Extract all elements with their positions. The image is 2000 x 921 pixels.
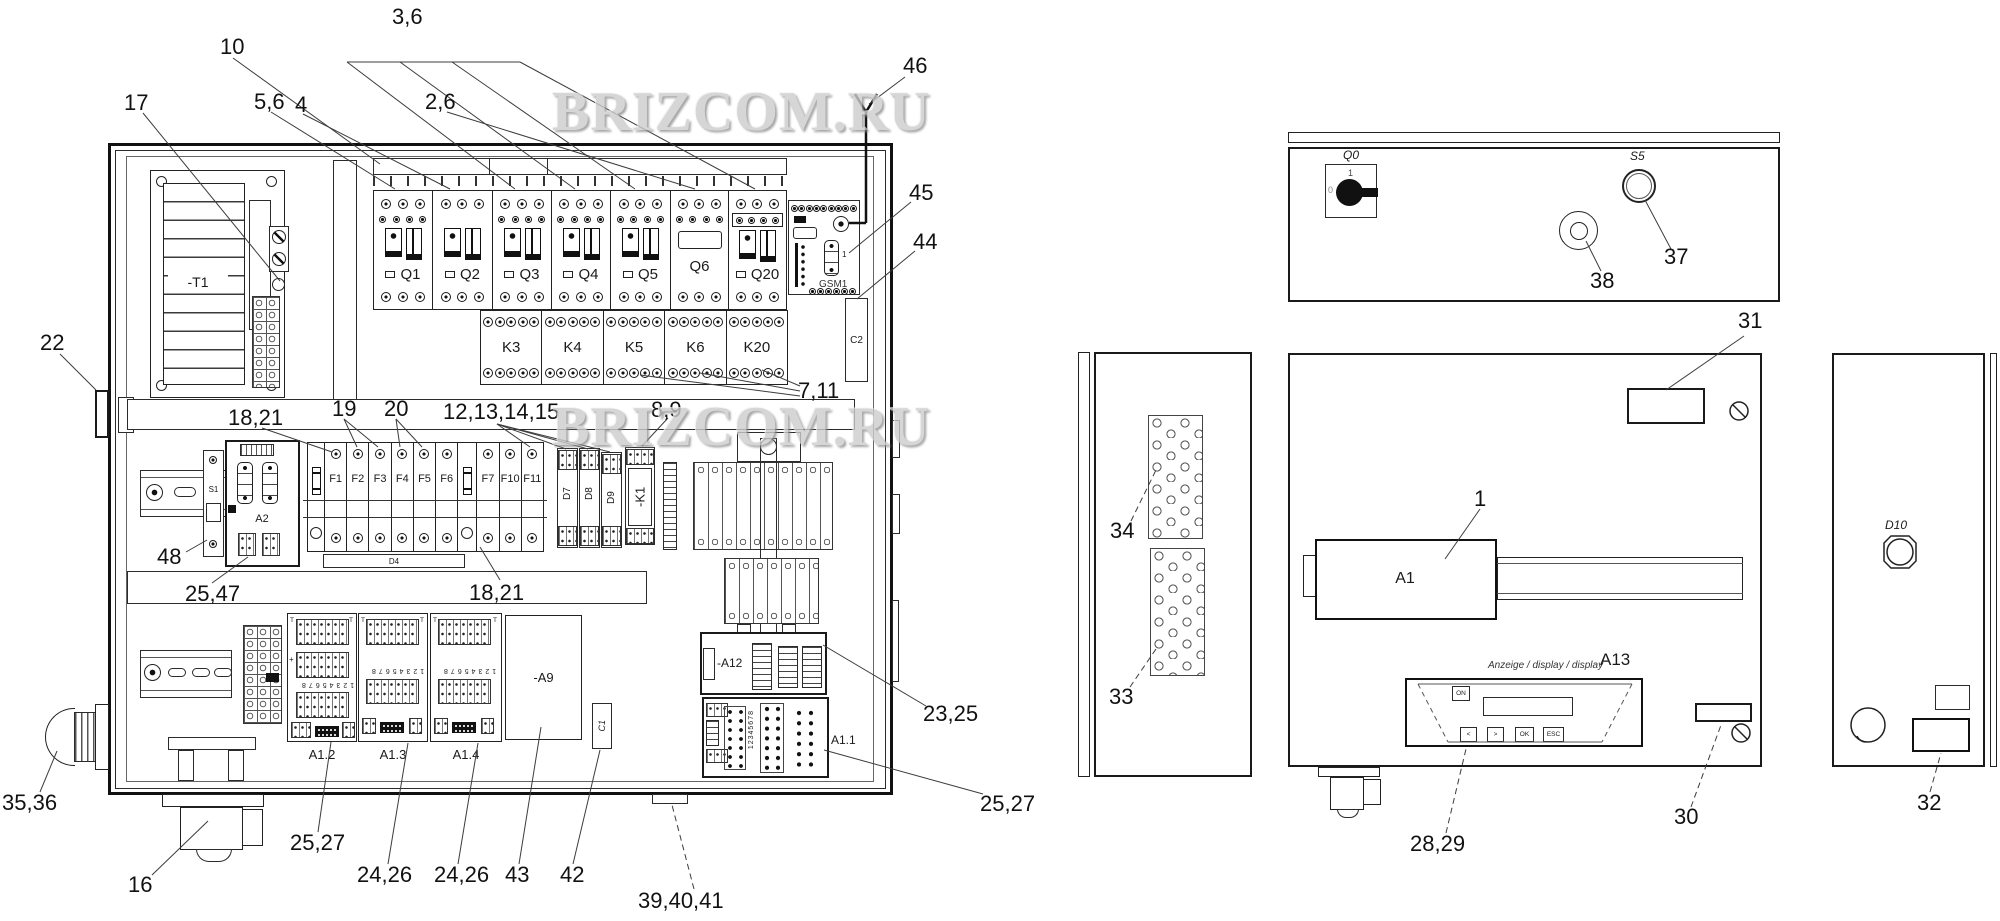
gsm-dsub-connector (824, 240, 839, 276)
d7-label: D7 (560, 474, 575, 514)
callout-32: 32 (1917, 790, 1941, 816)
io-terminal-strip (366, 619, 419, 645)
terminal-screws (437, 288, 488, 306)
a2-jumper (228, 505, 236, 513)
rail-screw (146, 484, 163, 501)
breaker-row: Q1 Q2 Q3 Q4 Q5 (373, 190, 787, 310)
bracket-bar (168, 737, 256, 750)
a13-esc-button: ESC (1543, 727, 1564, 742)
relay-label: K6 (686, 339, 704, 356)
fuse-label-wrap: F11 (523, 459, 541, 499)
terminal-screws (378, 195, 428, 213)
a11-label: A1.1 (831, 733, 856, 747)
io-bottom-block (481, 718, 494, 734)
a2-dsub-1 (237, 462, 253, 504)
callout-24-26-a: 24,26 (357, 862, 412, 888)
terminal-screws (667, 365, 724, 381)
breaker-label-wrap: Q5 (623, 266, 658, 283)
terminal-screws (483, 365, 540, 381)
indicator-38-inner (1570, 222, 1588, 240)
breaker-switch-icon (504, 228, 541, 260)
callout-23-25: 23,25 (923, 701, 978, 727)
callout-38: 38 (1590, 268, 1614, 294)
d9-bottom-terminals (602, 526, 621, 546)
marker-icon (445, 271, 455, 278)
io-terminal-strip (296, 692, 349, 718)
a13-caption: Anzeige / display / display (1488, 660, 1603, 671)
a1-rail-line (1497, 563, 1743, 564)
callout-37: 37 (1664, 244, 1688, 270)
marker-icon (623, 271, 633, 278)
relay-label-wrap: K6 (686, 330, 704, 365)
a2-label: A2 (248, 512, 276, 526)
callout-2-6: 2,6 (425, 89, 456, 115)
screw-icon (272, 252, 286, 266)
a11-strip (706, 720, 719, 746)
terminal-screws (556, 288, 606, 306)
marker-icon (385, 271, 395, 278)
fuse-label-wrap: F10 (501, 459, 520, 499)
breaker-label: Q3 (519, 266, 539, 283)
terminal-screws (606, 365, 663, 381)
hole-icon (272, 278, 285, 291)
relay-k4: K4 (542, 311, 603, 384)
label-window-31 (1627, 388, 1705, 424)
terminal-screws (497, 288, 547, 306)
fuse-label-wrap: F4 (396, 459, 409, 499)
callout-25-27-b: 25,27 (980, 791, 1035, 817)
terminal-screws (497, 195, 547, 213)
relay-label: K4 (563, 339, 581, 356)
callout-1: 1 (1474, 486, 1486, 512)
d7-bottom-terminals (558, 526, 577, 546)
c1-capacitor: C1 (592, 703, 612, 749)
left-hinge-tab (95, 390, 109, 438)
fuse-f5: F5 (414, 443, 436, 551)
terminal-screws (376, 213, 429, 225)
fuse-disconnect (458, 443, 477, 551)
relay-k6: K6 (665, 311, 726, 384)
rail-slot (192, 668, 210, 677)
rail-screw (144, 664, 161, 681)
relay-label: K3 (502, 339, 520, 356)
marker-icon (736, 271, 746, 278)
callout-48: 48 (157, 544, 181, 570)
terminal-screws (732, 213, 783, 227)
a13-designator: A13 (1600, 650, 1630, 670)
terminal-screws (615, 288, 666, 306)
io-terminal-strip (296, 652, 349, 678)
fuse-f6: F6 (436, 443, 458, 551)
d7-top-terminals (558, 450, 577, 470)
fuse-label: F11 (523, 473, 541, 485)
bottom-gland-tip (196, 849, 232, 862)
marker-icon (504, 271, 514, 278)
t-mark: T (493, 617, 497, 624)
fuse-label: F7 (482, 473, 495, 485)
terminal-screws (733, 288, 782, 306)
spacer (435, 213, 489, 225)
busbar-joint (547, 159, 551, 174)
s5-button (1622, 169, 1656, 203)
io-module-label: A1.3 (371, 747, 415, 762)
callout-43: 43 (505, 862, 529, 888)
fuse-row: F1 F2 F3 F4 F5 F6 F7 F10 F11 (307, 442, 544, 552)
terminal-screw (209, 540, 217, 548)
io-digits: 12345678 (441, 667, 491, 676)
fuse-f2: F2 (347, 443, 369, 551)
door-gland-flange (1318, 767, 1380, 777)
terminal-screws (495, 213, 548, 225)
fuse-glyph (463, 467, 472, 495)
terminal-screws (675, 195, 724, 213)
a11-digits: 12345678 (748, 710, 758, 766)
relay-label-wrap: K20 (743, 330, 770, 365)
relay-label-wrap: K3 (502, 330, 520, 365)
plus-mark: + (289, 655, 294, 664)
d8-label: D8 (582, 474, 597, 514)
q0-pos-off: 0 (1328, 185, 1333, 195)
relay-k20: K20 (727, 311, 787, 384)
fuse-label-wrap: F6 (440, 459, 453, 499)
fuse-label: F4 (396, 473, 409, 485)
breaker-q2: Q2 (433, 191, 493, 309)
t-mark: T (361, 617, 365, 624)
breaker-q6: Q6 (671, 191, 729, 309)
a1-rail-line (1497, 593, 1743, 594)
gsm-bottom-pins (808, 287, 856, 296)
a12-ladder (778, 646, 798, 688)
d10-label: D10 (1885, 518, 1907, 532)
bottom-gland-flange (162, 794, 264, 807)
a9-module: -A9 (505, 615, 582, 740)
s5-button-inner (1626, 173, 1652, 199)
breaker-switch-icon (563, 228, 600, 260)
a13-next-button: > (1487, 727, 1504, 742)
bracket-prong (228, 750, 244, 781)
a13-prev-button: < (1460, 727, 1477, 742)
right-tab-1 (892, 420, 900, 458)
fuse-din-rail (303, 500, 547, 518)
top-panel-strip (1288, 132, 1780, 143)
callout-25-27-a: 25,27 (290, 830, 345, 856)
terminal-screws (437, 195, 488, 213)
terminal-screws (544, 314, 601, 330)
fuse-label: F2 (351, 473, 364, 485)
gsm-pin-column (795, 243, 805, 287)
relay-label-wrap: K5 (625, 330, 643, 365)
right-tab-3 (892, 600, 899, 682)
callout-10: 10 (220, 34, 244, 60)
breaker-label-wrap: Q20 (736, 266, 779, 283)
gsm-connector (793, 227, 817, 239)
callout-45: 45 (909, 180, 933, 206)
bracket-prong (178, 750, 194, 781)
io-module-label: A1.4 (444, 747, 488, 762)
relay-row: K3 K4 K5 K6 K20 (480, 310, 788, 385)
marker-icon (563, 271, 573, 278)
breaker-q3: Q3 (493, 191, 552, 309)
small-window (1935, 685, 1970, 710)
fuse-glyph (312, 467, 321, 495)
breaker-q5: Q5 (611, 191, 671, 309)
k1-bottom-terminals (626, 528, 654, 544)
bottom-gland-body (180, 807, 243, 850)
fuse-label-wrap: F1 (329, 459, 342, 499)
fuse-f7: F7 (477, 443, 499, 551)
breaker-switch-icon (739, 230, 776, 262)
terminal-screw (209, 456, 217, 464)
io-digits: 12345678 (299, 681, 349, 690)
rail-slot (214, 668, 232, 677)
a11-terminal-col (724, 706, 746, 770)
fuse-f1: F1 (325, 443, 347, 551)
breaker-label-wrap: Q1 (385, 266, 420, 283)
callout-8-9: 8,9 (651, 397, 682, 423)
fuse-f11: F11 (522, 443, 543, 551)
fuse-label: F10 (501, 473, 520, 485)
io-terminal-strip (296, 619, 349, 645)
k1-label: -K1 (628, 468, 652, 526)
io-digits: 12345678 (369, 667, 419, 676)
breaker-label: Q20 (751, 266, 779, 283)
watermark-top: BRIZCOM.RU (552, 80, 931, 144)
terminal-screws (733, 195, 782, 213)
label-window-30 (1695, 703, 1752, 722)
breaker-label: Q2 (460, 266, 480, 283)
terminal-screws (378, 288, 428, 306)
io-terminal-strip (438, 619, 491, 645)
io-bottom-block (434, 718, 448, 734)
terminal-screws (613, 213, 667, 225)
gsm-port-label: 1 (842, 250, 846, 259)
callout-17: 17 (124, 90, 148, 116)
t-mark: T (433, 617, 437, 624)
vent-upper (1148, 415, 1203, 539)
callout-16: 16 (128, 872, 152, 898)
label-window-32 (1912, 718, 1970, 752)
right-tab-2 (892, 494, 900, 534)
relay-label-wrap: K4 (563, 330, 581, 365)
fuse-f4: F4 (392, 443, 414, 551)
breaker-label: Q4 (578, 266, 598, 283)
callout-18-21-b: 18,21 (469, 580, 524, 606)
relay-k5: K5 (604, 311, 665, 384)
screw-icon (272, 230, 286, 244)
callout-39-40-41: 39,40,41 (638, 888, 724, 914)
a2-terminal-1 (238, 533, 256, 556)
door-gland-tip (1337, 809, 1359, 818)
terminal-screws (615, 195, 666, 213)
door-gland-body (1330, 777, 1364, 810)
terminal-screws (728, 365, 785, 381)
t-mark: T (349, 617, 353, 624)
q0-pos-on: 1 (1348, 168, 1353, 178)
gsm-chip (794, 216, 806, 223)
q0-label: Q0 (1343, 148, 1359, 162)
terminal-strip-small (663, 462, 677, 550)
breaker-q1: Q1 (374, 191, 433, 309)
io-connector (380, 722, 404, 733)
breaker-q20: Q20 (729, 191, 786, 309)
a2-terminal-2 (262, 533, 280, 556)
breaker-label-wrap: Q6 (689, 258, 709, 275)
callout-34: 34 (1110, 518, 1134, 544)
callout-46: 46 (903, 53, 927, 79)
io-module-label: A1.2 (300, 747, 344, 762)
fuse-label-wrap: F5 (418, 459, 431, 499)
k1-top-terminals (626, 449, 654, 465)
terminal-screws (483, 314, 540, 330)
io-terminal-strip (366, 679, 419, 704)
door-gland-side (1363, 779, 1381, 805)
callout-24-26-b: 24,26 (434, 862, 489, 888)
io-bottom-block (409, 718, 422, 734)
fuse-holder-icon (678, 231, 722, 249)
terminal-screws (544, 365, 601, 381)
cable-gland-dome (45, 708, 75, 766)
terminal-screws (673, 213, 725, 225)
io-connector (452, 722, 476, 733)
s5-label: S5 (1630, 149, 1645, 163)
callout-3-6: 3,6 (392, 4, 423, 30)
terminal-block-lower (724, 558, 819, 624)
callout-30: 30 (1674, 804, 1698, 830)
busbar-joint (489, 159, 493, 174)
breaker-label-wrap: Q2 (445, 266, 480, 283)
a13-display-window (1483, 697, 1573, 716)
callout-31: 31 (1738, 308, 1762, 334)
assembly-diagram: -T1 Q1 Q2 Q3 (0, 0, 2000, 921)
relay-label: K20 (743, 339, 770, 356)
breaker-q4: Q4 (552, 191, 611, 309)
s1-label: S1 (204, 482, 223, 496)
io-terminal-strip (438, 679, 491, 704)
d8-top-terminals (580, 450, 599, 470)
breaker-label: Q5 (638, 266, 658, 283)
io-bottom-block (291, 722, 311, 738)
callout-42: 42 (560, 862, 584, 888)
callout-44: 44 (913, 229, 937, 255)
breaker-label-wrap: Q3 (504, 266, 539, 283)
callout-7-11: 7,11 (798, 378, 839, 404)
fuse-label-wrap: F3 (374, 459, 387, 499)
terminal-screws (554, 213, 607, 225)
a12-label: -A12 (717, 656, 742, 670)
vertical-duct (333, 160, 357, 430)
d9-label: D9 (604, 478, 619, 518)
antenna-connector-icon (833, 216, 849, 232)
io-bottom-block (342, 722, 355, 738)
a1-label: A1 (1380, 568, 1430, 590)
fuse-f10: F10 (500, 443, 522, 551)
breaker-label: Q1 (400, 266, 420, 283)
relay-k3: K3 (481, 311, 542, 384)
busbar-comb (373, 176, 787, 186)
terminal-screws (667, 314, 724, 330)
bottom-gland-side (242, 809, 263, 846)
fuse-label: F6 (440, 473, 453, 485)
callout-25-47: 25,47 (185, 581, 240, 607)
callout-4: 4 (295, 92, 307, 118)
t-mark: T (420, 617, 424, 624)
callout-28-29: 28,29 (1410, 831, 1465, 857)
breaker-label-wrap: Q4 (563, 266, 598, 283)
terminal-jumper (266, 673, 279, 682)
right-side-strip (1990, 353, 1997, 767)
d8-bottom-terminals (580, 526, 599, 546)
a2-dsub-2 (262, 462, 278, 504)
a12-ladder (802, 646, 822, 688)
breaker-switch-icon (622, 228, 659, 260)
callout-35-36: 35,36 (2, 790, 57, 816)
terminal-screws (556, 195, 606, 213)
fuse-disconnect (308, 443, 325, 551)
breaker-switch-icon (385, 228, 422, 260)
d4-bar: D4 (323, 554, 465, 568)
breaker-switch-icon (444, 228, 481, 260)
busbar (373, 158, 787, 175)
io-bottom-block (362, 718, 376, 734)
terminal-screws (606, 314, 663, 330)
hole-icon (461, 527, 473, 539)
callout-22: 22 (40, 330, 64, 356)
q0-handle (1361, 188, 1378, 197)
s1-body (206, 503, 221, 522)
a2-top-connector (240, 444, 274, 456)
d9-top-terminals (602, 454, 621, 474)
fuse-label-wrap: F2 (351, 459, 364, 499)
hole-icon (310, 527, 322, 539)
transformer-terminals (252, 296, 280, 388)
a11-terminal-col (760, 703, 784, 773)
side-strip (1078, 352, 1090, 777)
a13-on-button: ON (1452, 686, 1470, 701)
rail-slot (168, 668, 186, 677)
a12-ladder (752, 643, 772, 690)
vent-lower (1150, 548, 1205, 676)
breaker-label: Q6 (689, 258, 709, 275)
t-mark: T (290, 617, 294, 624)
q0-knob (1336, 179, 1363, 206)
transformer-label: -T1 (168, 272, 228, 292)
callout-33: 33 (1109, 684, 1133, 710)
relay-label: K5 (625, 339, 643, 356)
callout-19: 19 (332, 396, 356, 422)
fuse-f3: F3 (369, 443, 391, 551)
rail-slot (174, 487, 196, 497)
bottom-mount-tab (652, 794, 688, 804)
fuse-label: F3 (374, 473, 387, 485)
a12-side-block (703, 648, 715, 680)
c2-capacitor: C2 (845, 298, 868, 382)
cable-gland-ribs (74, 712, 96, 762)
callout-18-21-a: 18,21 (228, 405, 283, 431)
callout-20: 20 (384, 396, 408, 422)
a13-ok-button: OK (1515, 727, 1534, 742)
cable-gland-flange (95, 704, 109, 770)
terminal-screws (675, 288, 724, 306)
callout-5-6: 5,6 (254, 89, 285, 115)
io-connector (315, 726, 339, 737)
fuse-label-wrap: F7 (482, 459, 495, 499)
fuse-label: F1 (329, 473, 342, 485)
terminal-screws (728, 314, 785, 330)
callout-12-15: 12,13,14,15 (443, 399, 559, 425)
plate-hole (266, 176, 277, 187)
gsm-top-pins (791, 203, 857, 213)
a11-terminal-col (792, 708, 818, 770)
